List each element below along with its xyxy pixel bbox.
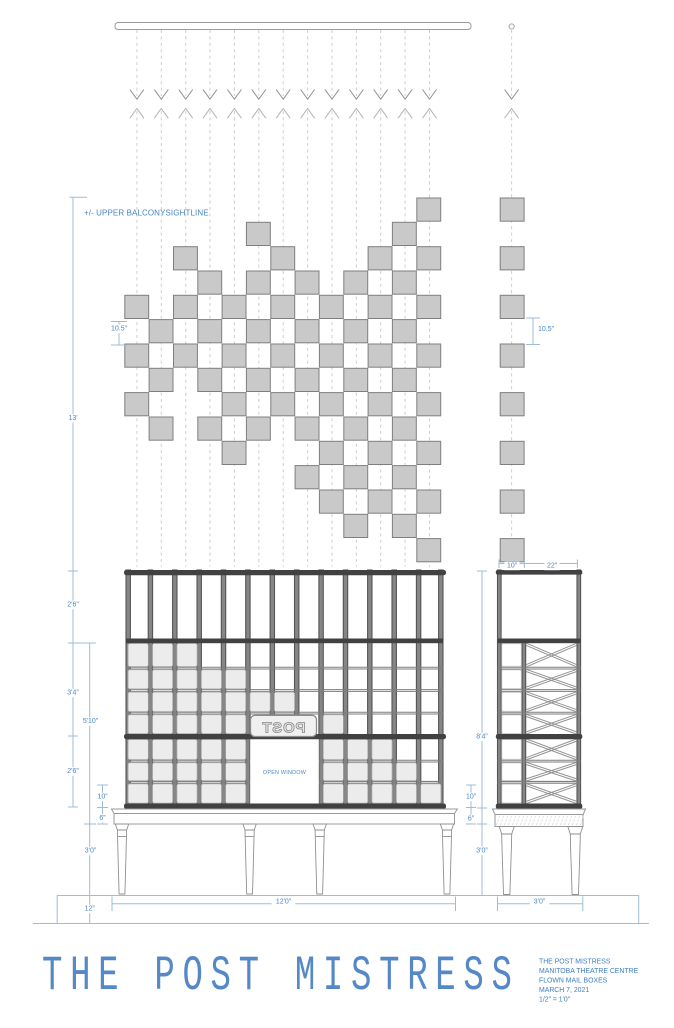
svg-text:6”: 6” (468, 816, 475, 823)
svg-text:FLOWN MAIL BOXES: FLOWN MAIL BOXES (539, 977, 608, 984)
svg-text:2'6”: 2'6” (67, 602, 79, 609)
svg-text:MANITOBA THEATRE CENTRE: MANITOBA THEATRE CENTRE (539, 968, 639, 975)
svg-text:3'0”: 3'0” (476, 848, 488, 855)
svg-text:10.5”: 10.5” (538, 326, 555, 333)
svg-text:POST: POST (261, 720, 305, 737)
svg-text:OPEN WINDOW: OPEN WINDOW (263, 770, 307, 776)
svg-text:3'4”: 3'4” (67, 690, 79, 697)
svg-text:MARCH 7, 2021: MARCH 7, 2021 (539, 987, 589, 994)
svg-text:10”: 10” (97, 794, 108, 801)
svg-text:13': 13' (68, 415, 77, 422)
svg-text:3'0”: 3'0” (534, 899, 546, 906)
svg-text:+/- UPPER BALCONYSIGHTLINE: +/- UPPER BALCONYSIGHTLINE (84, 209, 209, 218)
svg-text:1/2” = 1'0”: 1/2” = 1'0” (539, 997, 571, 1004)
svg-text:6”: 6” (99, 815, 106, 822)
svg-text:THE POST MISTRESS: THE POST MISTRESS (539, 958, 611, 965)
svg-text:22”: 22” (547, 563, 558, 570)
svg-text:5'10”: 5'10” (83, 718, 99, 725)
svg-text:2'6”: 2'6” (67, 768, 79, 775)
svg-text:3'0”: 3'0” (85, 848, 97, 855)
svg-text:12”: 12” (85, 906, 96, 913)
svg-text:10.5”: 10.5” (111, 326, 128, 333)
svg-text:10”: 10” (507, 563, 518, 570)
svg-text:8'4”: 8'4” (476, 734, 488, 741)
svg-text:12'0”: 12'0” (276, 899, 292, 906)
svg-text:THE POST MISTRESS: THE POST MISTRESS (42, 948, 520, 1004)
svg-text:10”: 10” (466, 794, 477, 801)
